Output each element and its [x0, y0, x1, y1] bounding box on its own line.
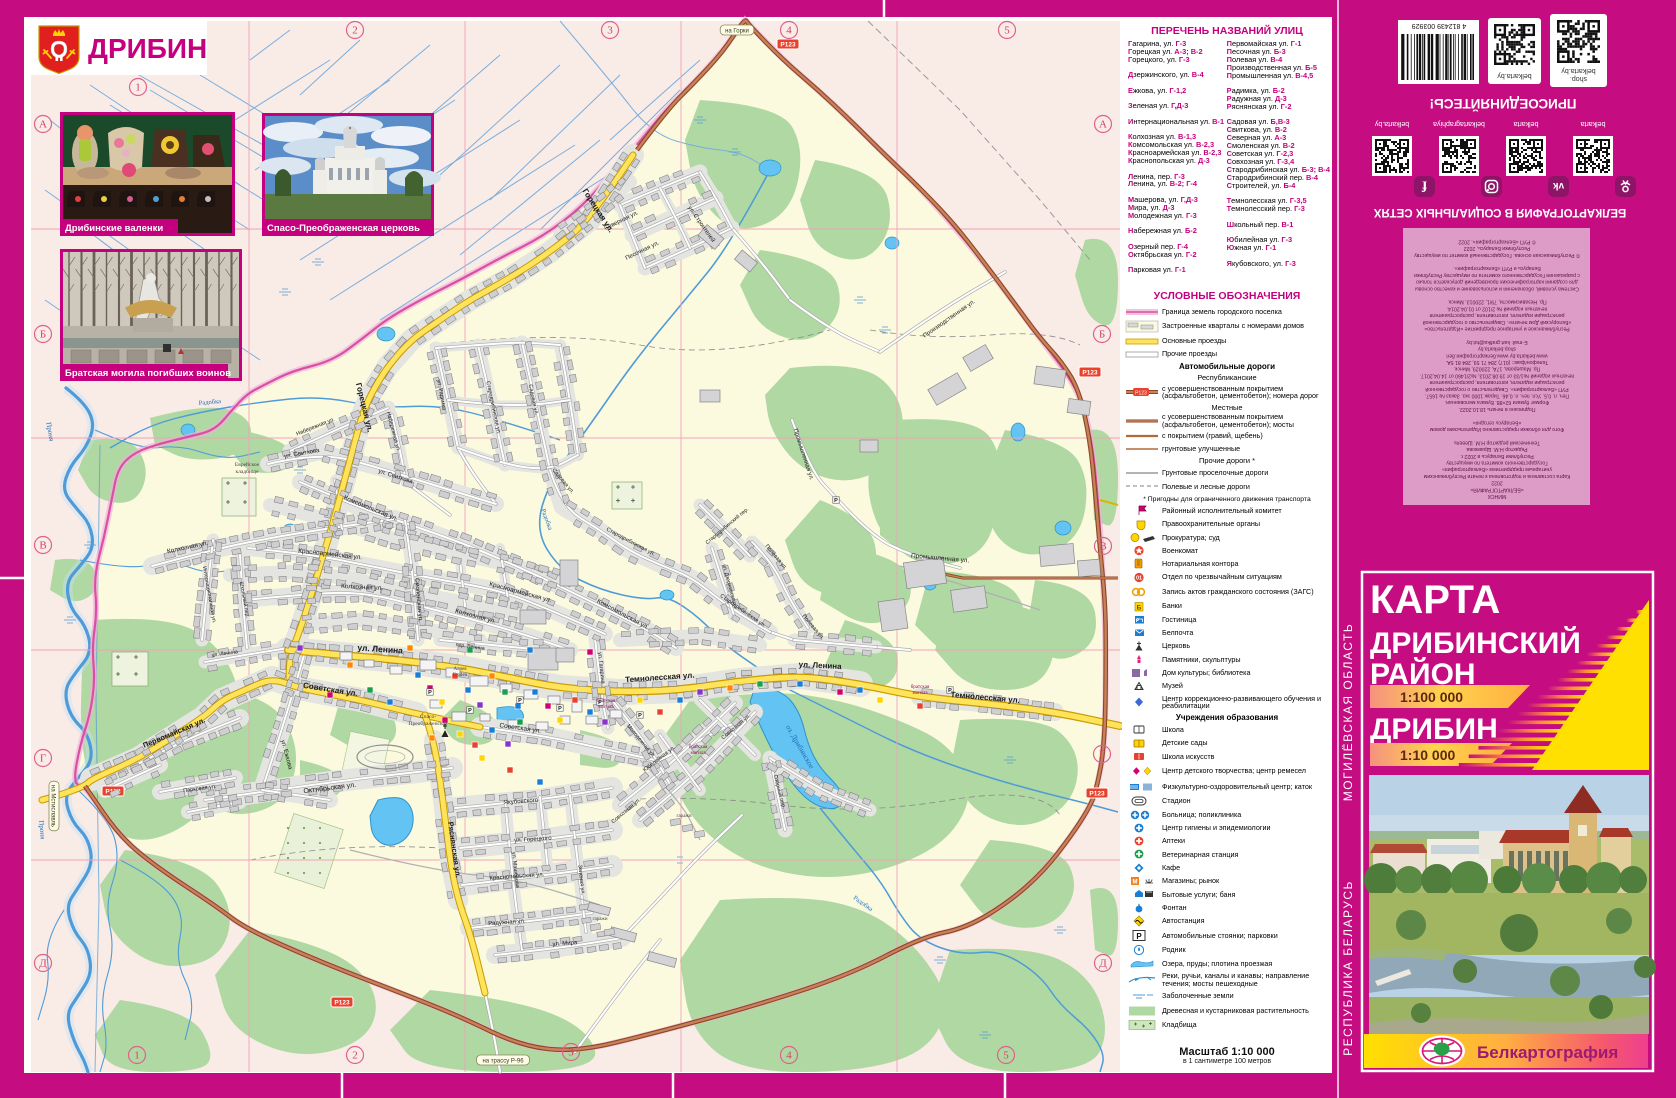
svg-text:shop.: shop.: [1570, 75, 1587, 82]
svg-text:4 812439 003929: 4 812439 003929: [1412, 22, 1467, 29]
svg-text:Г: Г: [40, 753, 46, 765]
svg-text:братская: братская: [689, 745, 708, 750]
svg-text:1:100 000: 1:100 000: [1400, 689, 1463, 705]
svg-text:Спасо-: Спасо-: [420, 714, 436, 720]
svg-text:Телефон/факс: (017) 284 71 59,: Телефон/факс: (017) 284 71 59, 284 81 5А…: [1446, 359, 1549, 365]
svg-text:belkarta: belkarta: [1580, 120, 1605, 127]
svg-text:Технический редактор Н.М. Шеве: Технический редактор Н.М. Шевель: [1454, 439, 1541, 446]
svg-text:братская: братская: [597, 699, 616, 704]
svg-text:2: 2: [352, 1050, 358, 1062]
svg-text:В: В: [1099, 541, 1106, 553]
svg-text:belkartagraphiya: belkartagraphiya: [1433, 120, 1485, 127]
svg-text:belkarta.by: belkarta.by: [1374, 120, 1409, 127]
svg-text:Аллея: Аллея: [453, 667, 467, 672]
svg-text:Д: Д: [1099, 958, 1107, 970]
svg-text:МИНСК: МИНСК: [1488, 493, 1507, 499]
svg-text:РЕСПУБЛИКА БЕЛАРУСЬ: РЕСПУБЛИКА БЕЛАРУСЬ: [1341, 880, 1355, 1056]
svg-text:Д: Д: [39, 958, 47, 970]
svg-text:Преображенская: Преображенская: [408, 720, 447, 727]
svg-text:www.belkarta.by www.белкартог: www.belkarta.by www.белкартография.бел: [1446, 352, 1547, 358]
svg-text:В: В: [39, 540, 46, 552]
svg-text:E-mail: kart.grafika@tut.by: E-mail: kart.grafika@tut.by: [1466, 339, 1528, 345]
svg-text:регистрации издателя, изготови: регистрации издателя, изготовителя, расп…: [1429, 379, 1564, 385]
svg-text:кладбище: кладбище: [235, 468, 259, 475]
svg-text:ДРИБИН: ДРИБИН: [1370, 713, 1498, 746]
svg-text:P: P: [428, 690, 432, 696]
svg-text:2: 2: [352, 25, 358, 37]
svg-text:гаражи: гаражи: [676, 814, 691, 819]
svg-text:могила: могила: [690, 751, 706, 756]
svg-text:печатных изданий № 2/102 от 01: печатных изданий № 2/102 от 01.04.2014.: [1447, 305, 1548, 312]
svg-text:«Беларусь сегодня»: «Беларусь сегодня»: [1473, 419, 1522, 425]
svg-text:P: P: [518, 698, 522, 704]
svg-text:Героев: Героев: [453, 673, 468, 678]
svg-text:3: 3: [568, 1047, 574, 1059]
svg-text:Беларусь и РУП «Белкартография: Беларусь и РУП «Белкартография».: [1453, 265, 1541, 271]
svg-text:на Мстиславль: на Мстиславль: [50, 785, 56, 827]
svg-text:Г: Г: [1099, 749, 1105, 761]
svg-text:shop.belkarta.by: shop.belkarta.by: [1478, 346, 1516, 352]
svg-text:Б: Б: [40, 329, 46, 341]
svg-text:«Белоруский Дом печати». Свиде: «Белоруский Дом печати». Свидетельство о…: [1423, 319, 1572, 326]
svg-text:2022: 2022: [1491, 480, 1503, 486]
svg-text:А: А: [39, 119, 47, 131]
svg-text:РУП «Белкартография». Свидетел: РУП «Белкартография». Свидетельство о го…: [1425, 386, 1568, 393]
svg-text:P123: P123: [780, 42, 796, 49]
svg-text:Б: Б: [1099, 329, 1105, 341]
svg-text:5: 5: [1003, 1050, 1009, 1062]
svg-text:Б: Б: [1137, 604, 1142, 611]
svg-text:Система условий, обозначения и: Система условий, обозначения и использов…: [1415, 285, 1579, 292]
svg-text:Формат бумаги 62×88. Бумага ме: Формат бумаги 62×88. Бумага мелованная.: [1445, 399, 1549, 405]
svg-text:унитарным предприятием «Белкар: унитарным предприятием «Белкартография»: [1442, 466, 1552, 472]
svg-text:с разрешения Государственного: с разрешения Государственного комитета п…: [1414, 272, 1580, 278]
svg-text:© Республиканская основа. Госу: © Республиканская основа. Государственны…: [1414, 252, 1580, 259]
svg-text:Спасо-Преображенская церковь: Спасо-Преображенская церковь: [267, 223, 420, 234]
svg-text:печатных изданий №1/33 от 19.0: печатных изданий №1/33 от 19.08.2013, №2…: [1420, 372, 1575, 379]
svg-text:Печ. л. 0,5. Усл. печ. л. 0,46: Печ. л. 0,5. Усл. печ. л. 0,46. Тираж 10…: [1425, 393, 1569, 399]
svg-text:5: 5: [1004, 25, 1010, 37]
svg-text:Подписано в печать 18.10.2022.: Подписано в печать 18.10.2022.: [1458, 406, 1535, 412]
svg-text:Республики Беларусь в 2022 г.: Республики Беларусь в 2022 г.: [1460, 453, 1533, 459]
svg-text:1: 1: [134, 1050, 140, 1062]
svg-text:Пр. Машерова, 17А, 220029, Мин: Пр. Машерова, 17А, 220029, Минск.: [1454, 366, 1541, 372]
svg-text:Белкартография: Белкартография: [1477, 1043, 1618, 1062]
svg-text:4: 4: [786, 25, 792, 37]
svg-text:belkarta.by: belkarta.by: [1497, 72, 1532, 79]
svg-text:3: 3: [607, 25, 613, 37]
svg-text:Братская могила погибших воино: Братская могила погибших воинов: [65, 368, 231, 379]
svg-text:P: P: [834, 498, 838, 504]
svg-text:Р: Р: [1136, 932, 1142, 941]
svg-text:Фото для обложки предоставлено: Фото для обложки предоставлено Издательс…: [1429, 426, 1564, 432]
svg-text:ДРИБИН: ДРИБИН: [88, 33, 207, 64]
svg-text:могила: могила: [912, 691, 928, 696]
svg-text:«БЕЛКАРТОГРАФИЯ»: «БЕЛКАРТОГРАФИЯ»: [1470, 486, 1523, 492]
svg-text:регистрации издателя, изготови: регистрации издателя, изготовителя, расп…: [1429, 312, 1564, 318]
svg-text:Карта составлена и подготовлен: Карта составлена и подготовлена к печати…: [1423, 473, 1570, 479]
svg-text:Редактор Н.М. Шрамкова: Редактор Н.М. Шрамкова: [1466, 446, 1527, 452]
svg-text:Государственного комитета по и: Государственного комитета по имуществу: [1446, 460, 1548, 466]
svg-text:МОГИЛЁВСКАЯ ОБЛАСТЬ: МОГИЛЁВСКАЯ ОБЛАСТЬ: [1341, 623, 1355, 801]
svg-text:БЕЛКАРТОГРАФИЯ В СОЦИАЛЬНЫХ СЕ: БЕЛКАРТОГРАФИЯ В СОЦИАЛЬНЫХ СЕТЯХ: [1373, 206, 1626, 218]
svg-text:А: А: [1099, 119, 1107, 131]
svg-text:Пр. Независимости, 79/1, 22001: Пр. Независимости, 79/1, 220013, Минск.: [1447, 299, 1546, 305]
svg-text:P: P: [638, 713, 642, 719]
svg-text:P123: P123: [334, 1000, 350, 1007]
svg-text:P123: P123: [1089, 791, 1105, 798]
svg-text:belkarta.by: belkarta.by: [1561, 67, 1596, 74]
svg-text:Р123: Р123: [1135, 391, 1147, 397]
svg-text:ПРИСОЕДИНЯЙТЕСЬ!: ПРИСОЕДИНЯЙТЕСЬ!: [1429, 96, 1576, 111]
svg-text:могила: могила: [598, 705, 614, 710]
svg-text:© РУП «Белкартография», 2022: © РУП «Белкартография», 2022: [1458, 238, 1535, 245]
svg-text:на трассу Р-96: на трассу Р-96: [482, 1059, 524, 1065]
svg-text:Республиканское и унитарное пр: Республиканское и унитарное предприятие …: [1424, 326, 1569, 332]
svg-text:P: P: [558, 706, 562, 712]
svg-text:КАРТА: КАРТА: [1370, 578, 1500, 622]
svg-text:P: P: [468, 708, 472, 714]
svg-text:для создания картографических: для создания картографических произведен…: [1416, 279, 1578, 286]
svg-text:М: М: [1133, 880, 1138, 886]
svg-text:01: 01: [1136, 575, 1142, 581]
svg-text:vk: vk: [1553, 180, 1565, 191]
svg-text:1:10 000: 1:10 000: [1400, 747, 1455, 763]
svg-text:гаражи: гаражи: [592, 917, 607, 922]
svg-text:ДРИБИНСКИЙ: ДРИБИНСКИЙ: [1370, 626, 1581, 660]
svg-text:братская: братская: [911, 685, 930, 690]
svg-text:belkarta: belkarta: [1513, 120, 1538, 127]
svg-text:P123: P123: [1082, 370, 1098, 377]
svg-text:1: 1: [135, 82, 141, 94]
svg-text:Дрибинские валенки: Дрибинские валенки: [65, 223, 163, 234]
svg-text:Еврейское: Еврейское: [235, 461, 260, 468]
svg-text:на Горки: на Горки: [725, 29, 749, 35]
svg-text:Республики Беларусь, 2022: Республики Беларусь, 2022: [1464, 245, 1531, 251]
svg-text:4: 4: [786, 1050, 792, 1062]
